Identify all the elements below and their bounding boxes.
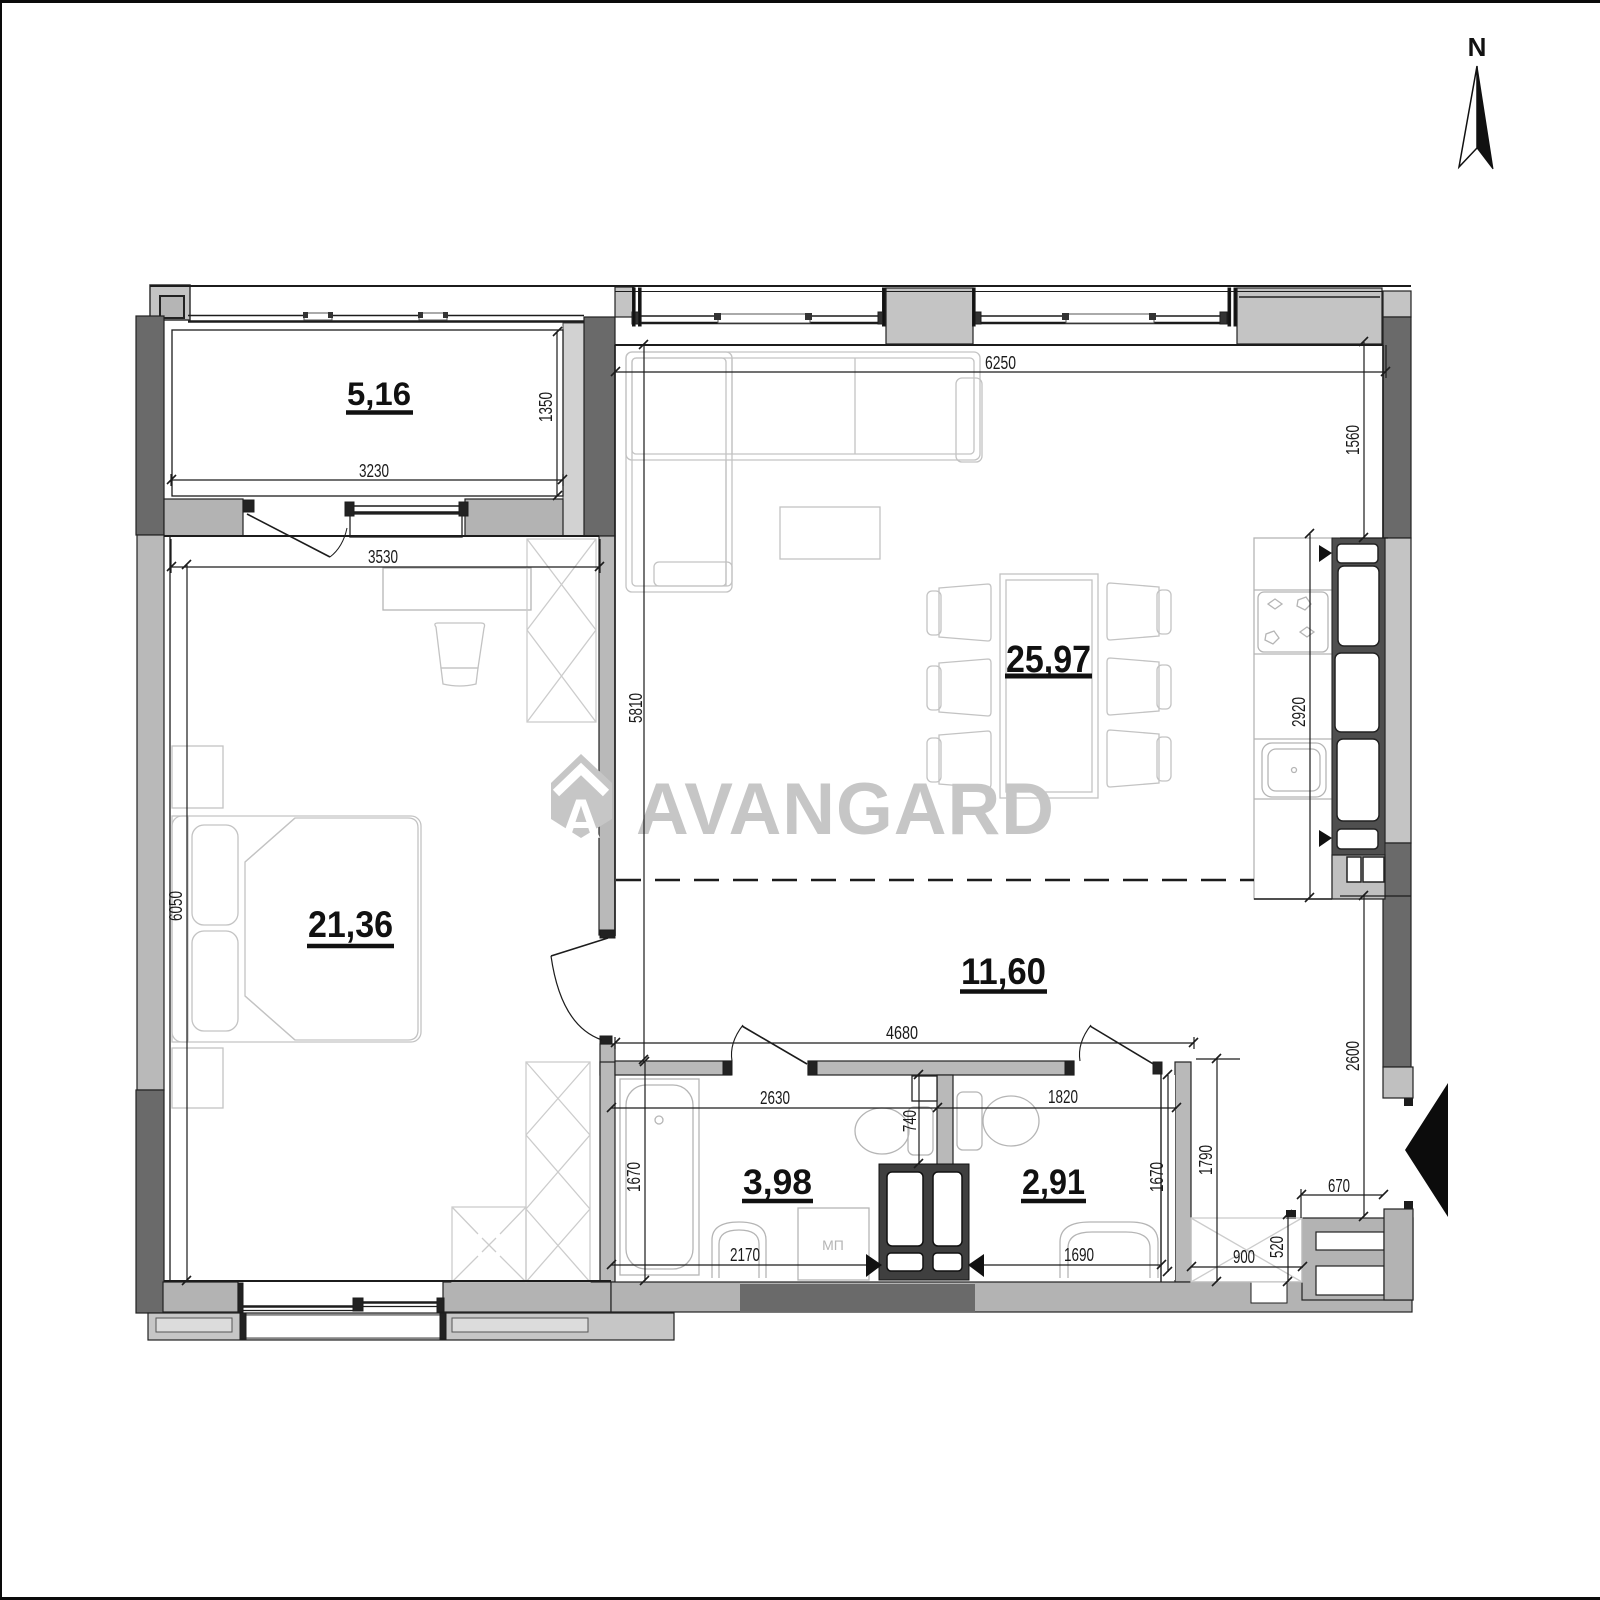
svg-text:МП: МП	[822, 1237, 844, 1253]
svg-text:2920: 2920	[1289, 697, 1309, 727]
svg-text:1690: 1690	[1064, 1245, 1094, 1265]
svg-text:AVANGARD: AVANGARD	[636, 769, 1055, 850]
svg-text:2170: 2170	[730, 1245, 760, 1265]
svg-text:1350: 1350	[536, 392, 556, 422]
svg-text:740: 740	[900, 1110, 920, 1132]
svg-text:3530: 3530	[368, 547, 398, 567]
svg-text:2630: 2630	[760, 1088, 790, 1108]
svg-text:21,36: 21,36	[308, 904, 393, 945]
svg-text:900: 900	[1233, 1247, 1255, 1267]
svg-text:1560: 1560	[1343, 425, 1363, 455]
svg-text:520: 520	[1267, 1236, 1287, 1258]
svg-text:6250: 6250	[985, 353, 1016, 373]
svg-text:4680: 4680	[886, 1023, 918, 1043]
svg-text:2,91: 2,91	[1022, 1163, 1085, 1202]
svg-text:1670: 1670	[624, 1162, 644, 1192]
svg-text:3,98: 3,98	[743, 1163, 812, 1202]
svg-text:5810: 5810	[626, 693, 646, 723]
svg-text:A: A	[561, 787, 601, 850]
svg-text:6050: 6050	[166, 891, 186, 921]
svg-text:5,16: 5,16	[347, 376, 411, 412]
svg-text:2600: 2600	[1343, 1041, 1363, 1071]
svg-text:1790: 1790	[1196, 1145, 1216, 1175]
svg-text:11,60: 11,60	[961, 951, 1046, 992]
svg-text:1820: 1820	[1048, 1087, 1078, 1107]
svg-text:1670: 1670	[1147, 1162, 1167, 1192]
svg-text:670: 670	[1328, 1176, 1350, 1196]
svg-text:N: N	[1468, 32, 1487, 62]
svg-text:3230: 3230	[359, 461, 389, 481]
